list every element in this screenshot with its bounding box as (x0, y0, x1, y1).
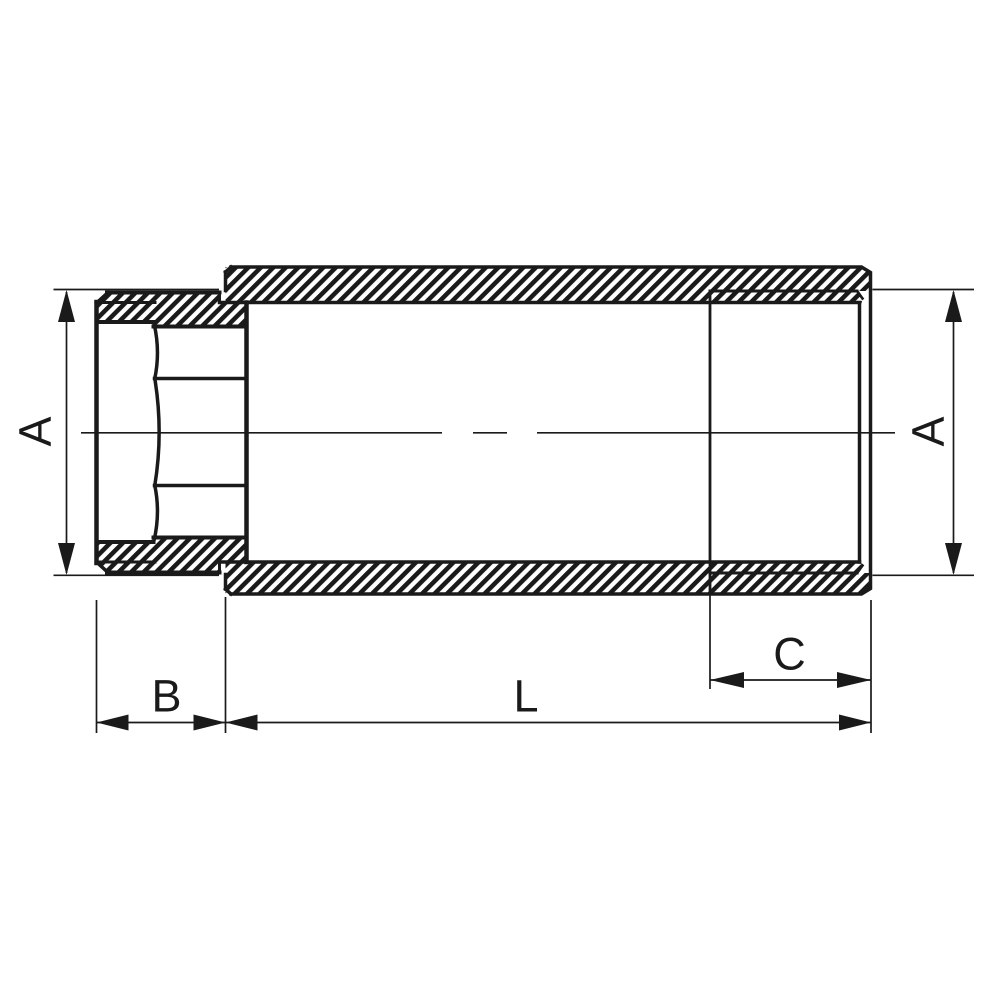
svg-text:A: A (903, 416, 954, 446)
svg-text:B: B (151, 671, 181, 722)
svg-text:A: A (10, 416, 61, 446)
svg-text:L: L (513, 671, 538, 722)
svg-text:C: C (773, 629, 806, 680)
